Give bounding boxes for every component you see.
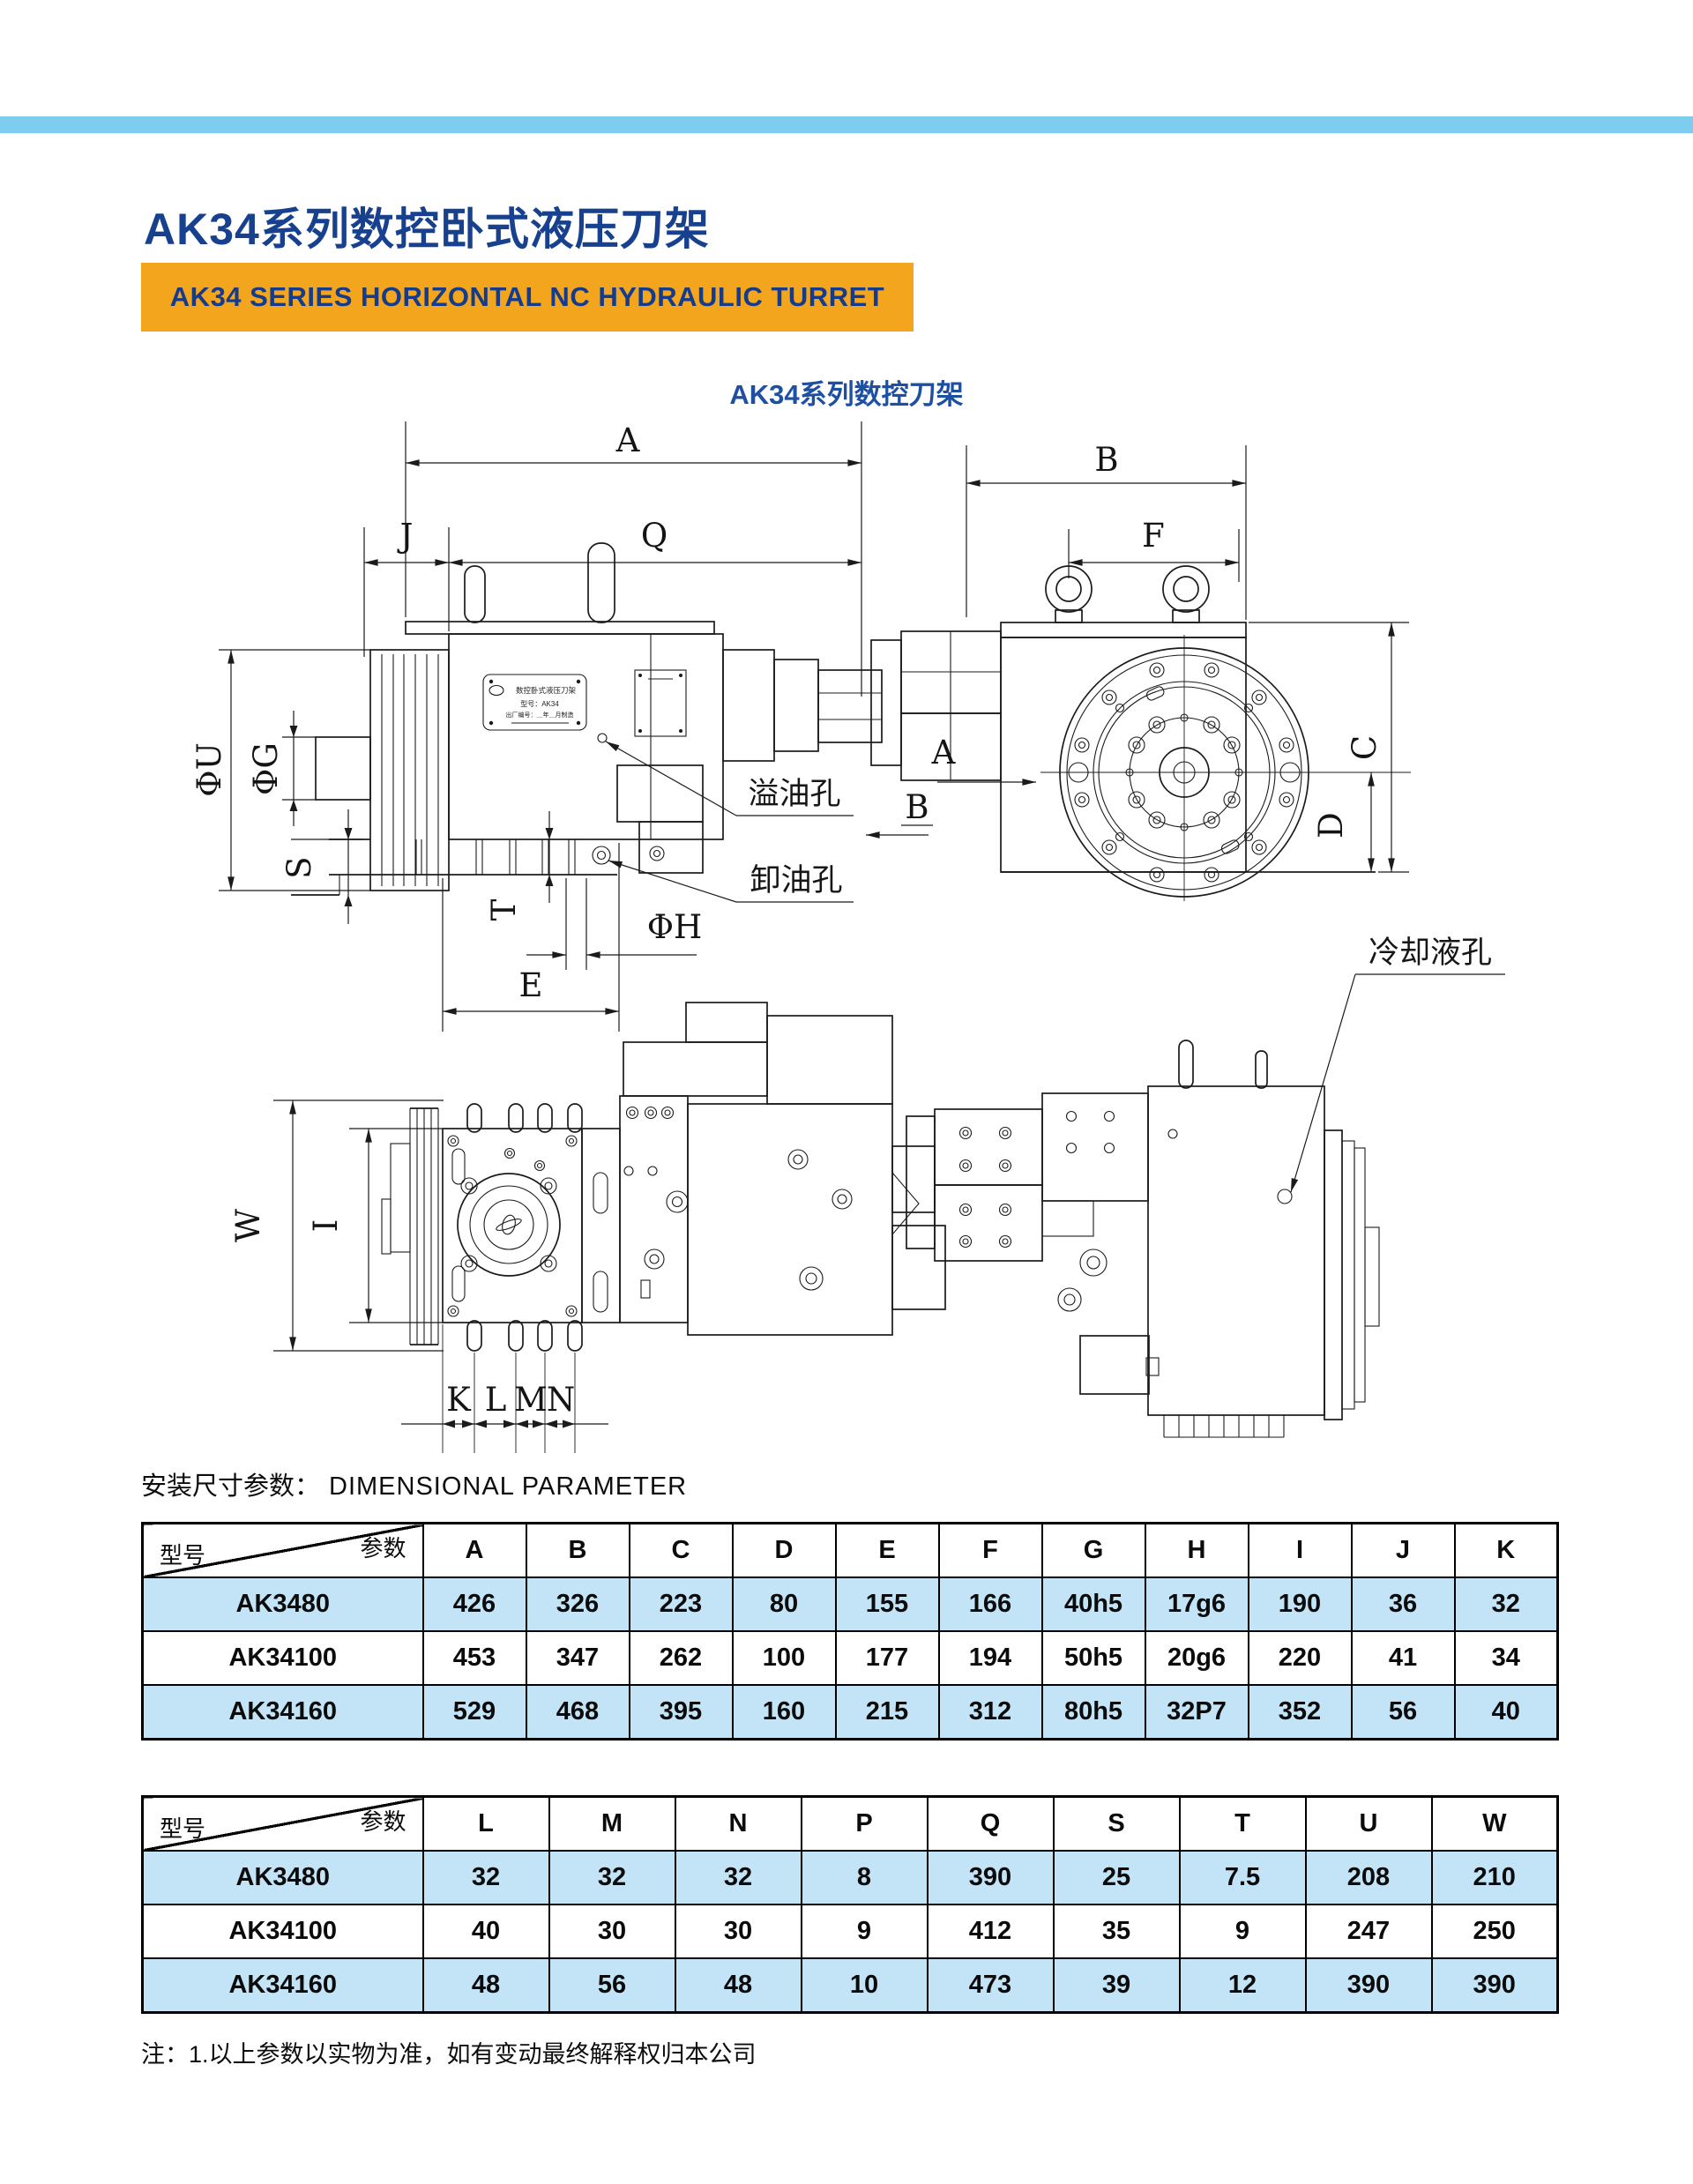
nameplate: 数控卧式液压刀架 型号：AK34 出厂编号：＿年＿月制造 — [483, 675, 586, 730]
dimension-table-2: 参数 型号 L M N P Q S T U W AK3480 32 32 32 … — [141, 1795, 1559, 2014]
table-cell: 220 — [1249, 1631, 1352, 1685]
table-cell: 7.5 — [1180, 1851, 1306, 1904]
table-cell: 10 — [802, 1958, 928, 2013]
table-row: AK34100 40 30 30 9 412 35 9 247 250 — [143, 1904, 1558, 1958]
table-cell: 312 — [939, 1685, 1042, 1740]
table-row: AK34160 529 468 395 160 215 312 80h5 32P… — [143, 1685, 1558, 1740]
table1-corner-cell: 参数 型号 — [143, 1524, 423, 1578]
drawing-caption: AK34系列数控刀架 — [564, 372, 1129, 412]
column-header: K — [1455, 1524, 1558, 1578]
table-cell: 473 — [928, 1958, 1054, 2013]
dim-label-b: B — [1094, 441, 1118, 479]
view-arrow-b-label: B — [905, 788, 929, 826]
table-cell: 32 — [675, 1851, 802, 1904]
dim-label-q: Q — [641, 517, 668, 555]
column-header: I — [1249, 1524, 1352, 1578]
column-header: N — [675, 1797, 802, 1852]
table-cell: 32 — [549, 1851, 675, 1904]
catalog-page: AK34系列数控卧式液压刀架 AK34 SERIES HORIZONTAL NC… — [0, 0, 1693, 2184]
dim-label-w: W — [229, 1209, 267, 1242]
table-cell: 32 — [423, 1851, 549, 1904]
table-cell: 352 — [1249, 1685, 1352, 1740]
table-cell: 395 — [630, 1685, 733, 1740]
table-cell: 194 — [939, 1631, 1042, 1685]
dim-label-l: L — [485, 1381, 507, 1419]
dim-label-k: K — [446, 1381, 472, 1419]
dimension-table-1: 参数 型号 A B C D E F G H I J K AK3480 426 3… — [141, 1522, 1559, 1740]
dim-label-c: C — [1346, 735, 1383, 760]
table-cell: 9 — [1180, 1904, 1306, 1958]
table-cell: 30 — [675, 1904, 802, 1958]
table-cell: 30 — [549, 1904, 675, 1958]
table-cell: 32 — [1455, 1577, 1558, 1631]
column-header: D — [733, 1524, 836, 1578]
dim-label-a: A — [615, 421, 641, 459]
technical-drawing: A J Q — [123, 410, 1622, 1503]
column-header: U — [1306, 1797, 1432, 1852]
nameplate-line1: 数控卧式液压刀架 — [516, 686, 577, 695]
table-cell: 223 — [630, 1577, 733, 1631]
table-cell: 250 — [1432, 1904, 1558, 1958]
table-cell: 190 — [1249, 1577, 1352, 1631]
table-cell: 34 — [1455, 1631, 1558, 1685]
section-label-en: DIMENSIONAL PARAMETER — [329, 1472, 687, 1501]
table-cell: 426 — [423, 1577, 526, 1631]
table-cell: 208 — [1306, 1851, 1432, 1904]
footnote: 注：1.以上参数以实物为准，如有变动最终解释权归本公司 — [141, 2035, 757, 2069]
front-view-drawing: A J Q — [190, 421, 882, 1032]
nameplate-line3: 出厂编号：＿年＿月制造 — [506, 711, 574, 719]
dim-label-m: M — [514, 1381, 548, 1419]
table-cell: 390 — [1306, 1958, 1432, 2013]
model-cell: AK3480 — [143, 1577, 423, 1631]
column-header: E — [836, 1524, 939, 1578]
model-cell: AK3480 — [143, 1851, 423, 1904]
dim-label-e: E — [518, 966, 542, 1004]
table-cell: 8 — [802, 1851, 928, 1904]
page-title: AK34系列数控卧式液压刀架 — [144, 194, 710, 257]
table-cell: 210 — [1432, 1851, 1558, 1904]
table-cell: 390 — [1432, 1958, 1558, 2013]
table-row: AK34160 48 56 48 10 473 39 12 390 390 — [143, 1958, 1558, 2013]
table-cell: 215 — [836, 1685, 939, 1740]
table-cell: 247 — [1306, 1904, 1432, 1958]
dim-label-phi-h: ΦH — [647, 908, 703, 946]
corner-param-label: 参数 — [360, 1804, 406, 1837]
column-header: F — [939, 1524, 1042, 1578]
table-cell: 56 — [1352, 1685, 1455, 1740]
end-view-drawing: A B B F — [866, 441, 1411, 901]
table-cell: 39 — [1054, 1958, 1180, 2013]
column-header: A — [423, 1524, 526, 1578]
dim-label-d: D — [1312, 812, 1350, 839]
side-view-drawing: 冷却液孔 — [906, 935, 1505, 1437]
column-header: B — [526, 1524, 630, 1578]
table-row: AK3480 32 32 32 8 390 25 7.5 208 210 — [143, 1851, 1558, 1904]
drain-hole-label: 卸油孔 — [750, 863, 842, 898]
table-cell: 80 — [733, 1577, 836, 1631]
dim-label-phi-g: ΦG — [247, 742, 285, 795]
table-cell: 262 — [630, 1631, 733, 1685]
table-cell: 160 — [733, 1685, 836, 1740]
disc-face-view-drawing: W I — [229, 1003, 945, 1453]
table2-header-row: 参数 型号 L M N P Q S T U W — [143, 1797, 1558, 1852]
table-cell: 40 — [423, 1904, 549, 1958]
table-cell: 48 — [423, 1958, 549, 2013]
dim-label-phi-u: ΦU — [190, 742, 228, 797]
view-arrow-a-label: A — [931, 734, 957, 771]
table-cell: 468 — [526, 1685, 630, 1740]
corner-param-label: 参数 — [360, 1531, 406, 1563]
dim-label-j: J — [397, 517, 414, 555]
table-cell: 177 — [836, 1631, 939, 1685]
dim-label-f: F — [1142, 517, 1165, 555]
column-header: L — [423, 1797, 549, 1852]
table-cell: 35 — [1054, 1904, 1180, 1958]
top-accent-bar — [0, 116, 1693, 133]
section-label: 安装尺寸参数：DIMENSIONAL PARAMETER — [141, 1465, 687, 1502]
column-header: P — [802, 1797, 928, 1852]
table-cell: 100 — [733, 1631, 836, 1685]
table-cell: 50h5 — [1042, 1631, 1145, 1685]
table-cell: 20g6 — [1145, 1631, 1249, 1685]
title-banner: AK34 SERIES HORIZONTAL NC HYDRAULIC TURR… — [141, 263, 914, 332]
column-header: H — [1145, 1524, 1249, 1578]
dim-label-i: I — [307, 1219, 345, 1233]
column-header: T — [1180, 1797, 1306, 1852]
column-header: G — [1042, 1524, 1145, 1578]
table-cell: 529 — [423, 1685, 526, 1740]
table-cell: 32P7 — [1145, 1685, 1249, 1740]
table-cell: 80h5 — [1042, 1685, 1145, 1740]
table-cell: 155 — [836, 1577, 939, 1631]
nameplate-line2: 型号：AK34 — [520, 700, 559, 708]
coolant-hole-label: 冷却液孔 — [1369, 935, 1492, 970]
corner-model-label: 型号 — [160, 1811, 205, 1844]
table-cell: 17g6 — [1145, 1577, 1249, 1631]
column-header: C — [630, 1524, 733, 1578]
model-cell: AK34100 — [143, 1904, 423, 1958]
dim-label-t: T — [485, 898, 523, 921]
dim-label-n: N — [547, 1381, 575, 1419]
table-cell: 9 — [802, 1904, 928, 1958]
table-row: AK34100 453 347 262 100 177 194 50h5 20g… — [143, 1631, 1558, 1685]
table-row: AK3480 426 326 223 80 155 166 40h5 17g6 … — [143, 1577, 1558, 1631]
table-cell: 166 — [939, 1577, 1042, 1631]
table-cell: 453 — [423, 1631, 526, 1685]
column-header: J — [1352, 1524, 1455, 1578]
dim-label-s: S — [280, 856, 318, 878]
model-cell: AK34160 — [143, 1685, 423, 1740]
table-cell: 390 — [928, 1851, 1054, 1904]
table-cell: 56 — [549, 1958, 675, 2013]
table-cell: 48 — [675, 1958, 802, 2013]
section-label-cn: 安装尺寸参数： — [141, 1472, 320, 1501]
table-cell: 12 — [1180, 1958, 1306, 2013]
model-cell: AK34100 — [143, 1631, 423, 1685]
corner-model-label: 型号 — [160, 1538, 205, 1570]
table2-corner-cell: 参数 型号 — [143, 1797, 423, 1852]
table-cell: 25 — [1054, 1851, 1180, 1904]
table-cell: 412 — [928, 1904, 1054, 1958]
column-header: Q — [928, 1797, 1054, 1852]
table-cell: 347 — [526, 1631, 630, 1685]
title-banner-text: AK34 SERIES HORIZONTAL NC HYDRAULIC TURR… — [170, 281, 884, 313]
column-header: M — [549, 1797, 675, 1852]
table1-header-row: 参数 型号 A B C D E F G H I J K — [143, 1524, 1558, 1578]
table-cell: 41 — [1352, 1631, 1455, 1685]
model-cell: AK34160 — [143, 1958, 423, 2013]
table-cell: 40 — [1455, 1685, 1558, 1740]
column-header: S — [1054, 1797, 1180, 1852]
table-cell: 36 — [1352, 1577, 1455, 1631]
table-cell: 40h5 — [1042, 1577, 1145, 1631]
table-cell: 326 — [526, 1577, 630, 1631]
column-header: W — [1432, 1797, 1558, 1852]
overflow-hole-label: 溢油孔 — [748, 777, 840, 811]
